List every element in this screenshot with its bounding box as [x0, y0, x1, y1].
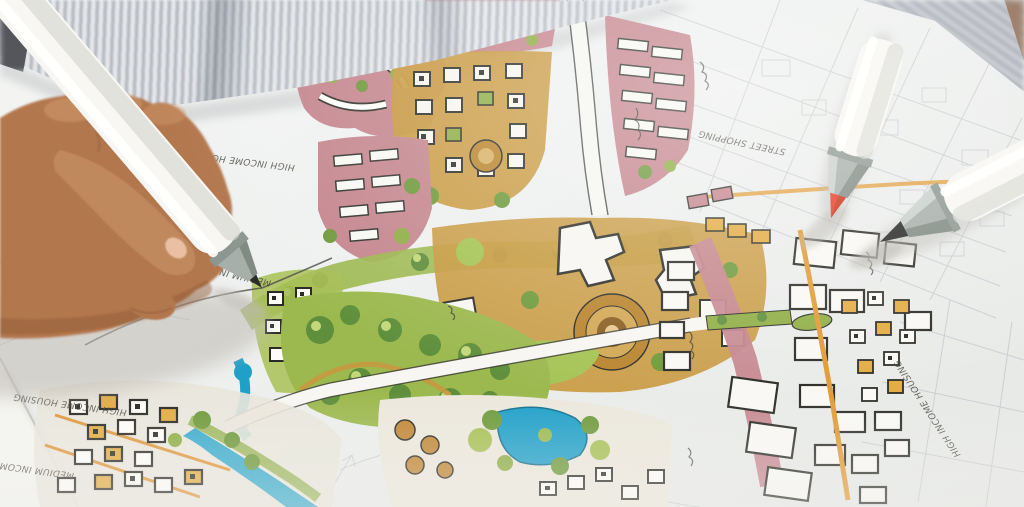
photo-canvas: HIGH INCOME HOUSING MEDIUM INCOME HOUSIN…	[0, 0, 1024, 507]
